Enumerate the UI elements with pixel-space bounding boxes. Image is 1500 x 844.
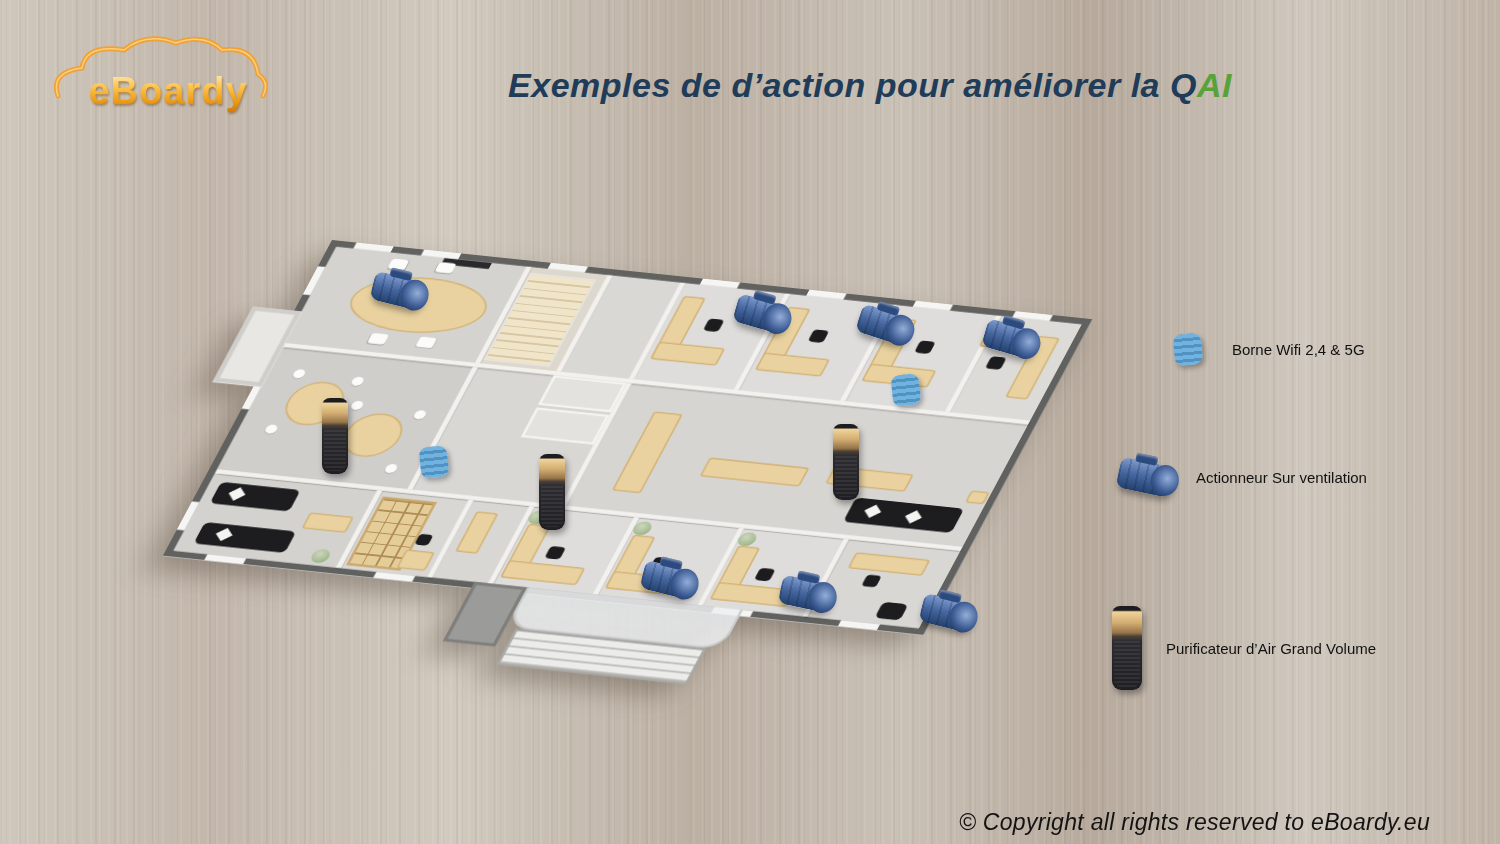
legend-item-purifier: Purificateur d’Air Grand Volume [1112, 606, 1376, 690]
legend-item-wifi: Borne Wifi 2,4 & 5G [1174, 334, 1365, 365]
room-wc [538, 375, 627, 412]
legend-label: Purificateur d’Air Grand Volume [1166, 640, 1376, 657]
legend-label: Borne Wifi 2,4 & 5G [1232, 341, 1365, 358]
ventilation-actuator-icon [1115, 457, 1176, 499]
copyright-notice: © Copyright all rights reserved to eBoar… [959, 809, 1430, 836]
title-main: Exemples de d’action pour améliorer la Q [508, 66, 1197, 104]
legend-item-actuator: Actionneur Sur ventilation [1118, 462, 1367, 493]
room-wc [521, 407, 610, 444]
slide-title: Exemples de d’action pour améliorer la Q… [430, 66, 1310, 105]
logo-wordmark: eBoardy [78, 70, 258, 113]
floor-plan-3d [163, 240, 1093, 635]
legend-label: Actionneur Sur ventilation [1196, 469, 1367, 486]
wifi-borne-icon [1173, 333, 1204, 366]
title-accent: AI [1197, 66, 1232, 104]
air-purifier-icon [1112, 606, 1142, 690]
eboardy-logo: eBoardy [50, 30, 280, 130]
slide-canvas: { "slide": { "logo": { "text": "eBoardy"… [0, 0, 1500, 844]
